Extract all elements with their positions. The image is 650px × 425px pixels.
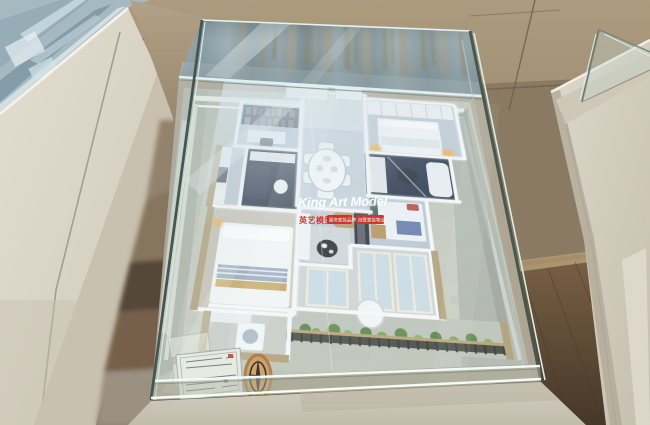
svg-text:服务家装品牌: 服务家装品牌	[329, 217, 356, 224]
svg-text:King Art Model: King Art Model	[298, 193, 388, 210]
svg-text:创意家装物业: 创意家装物业	[358, 217, 385, 224]
